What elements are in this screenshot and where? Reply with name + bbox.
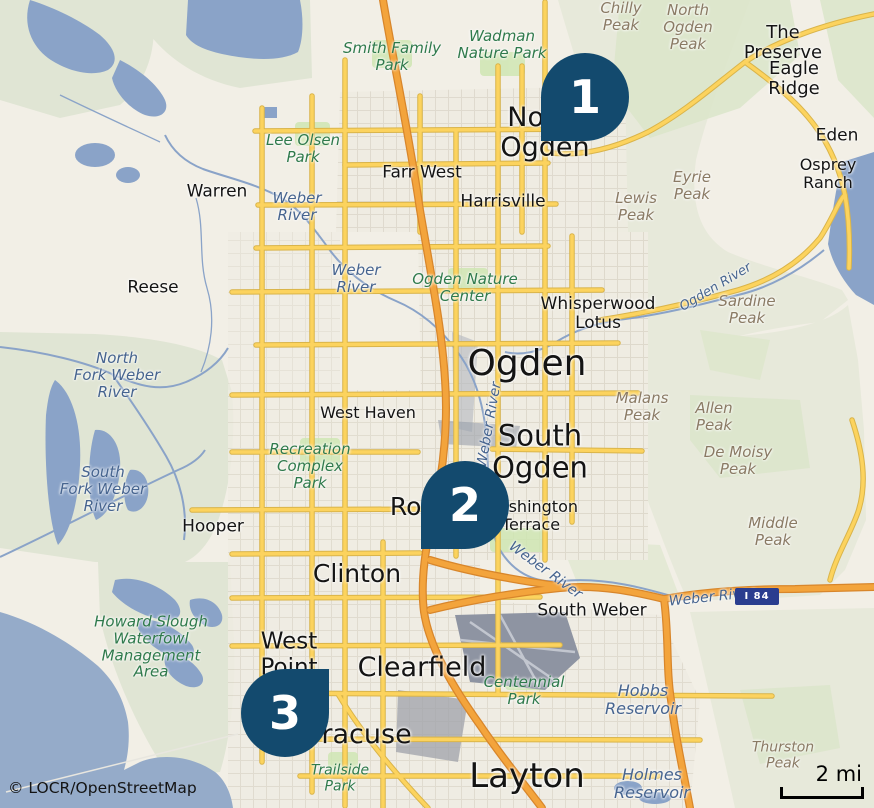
map-attribution: © LOCR/OpenStreetMap xyxy=(8,779,197,797)
map-marker-3[interactable]: 3 xyxy=(241,669,329,757)
i84-shield: I 84 xyxy=(735,588,779,605)
marker-3-number: 3 xyxy=(241,669,329,757)
map-canvas: I 84 North Ogden Ogden South Ogden Layto… xyxy=(0,0,874,808)
scale-bar: 2 mi xyxy=(780,764,864,799)
map-base-layer xyxy=(0,0,874,808)
map-marker-1[interactable]: 1 xyxy=(541,53,629,141)
marker-2-number: 2 xyxy=(421,461,509,549)
scale-label: 2 mi xyxy=(780,764,864,785)
scale-line xyxy=(780,787,864,799)
marker-1-number: 1 xyxy=(541,53,629,141)
i84-shield-label: I 84 xyxy=(744,591,769,602)
map-marker-2[interactable]: 2 xyxy=(421,461,509,549)
